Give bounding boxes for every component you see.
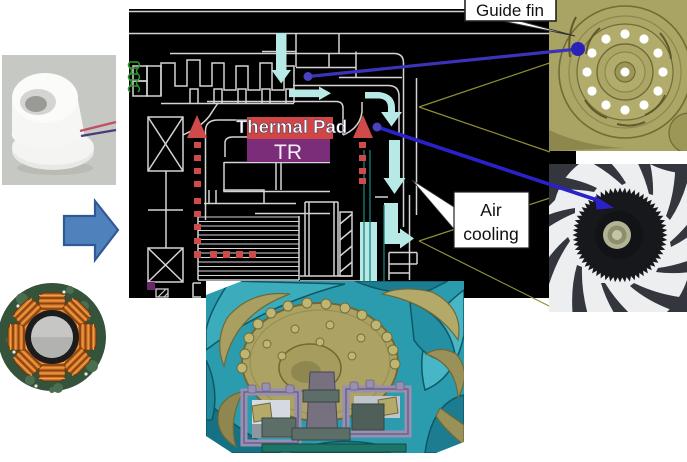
svg-text:Thermal Pad: Thermal Pad xyxy=(236,116,347,137)
svg-text:cooling: cooling xyxy=(463,224,518,244)
svg-text:Air: Air xyxy=(480,200,502,220)
svg-text:TR: TR xyxy=(274,141,302,164)
svg-text:Guide fin: Guide fin xyxy=(476,1,544,20)
